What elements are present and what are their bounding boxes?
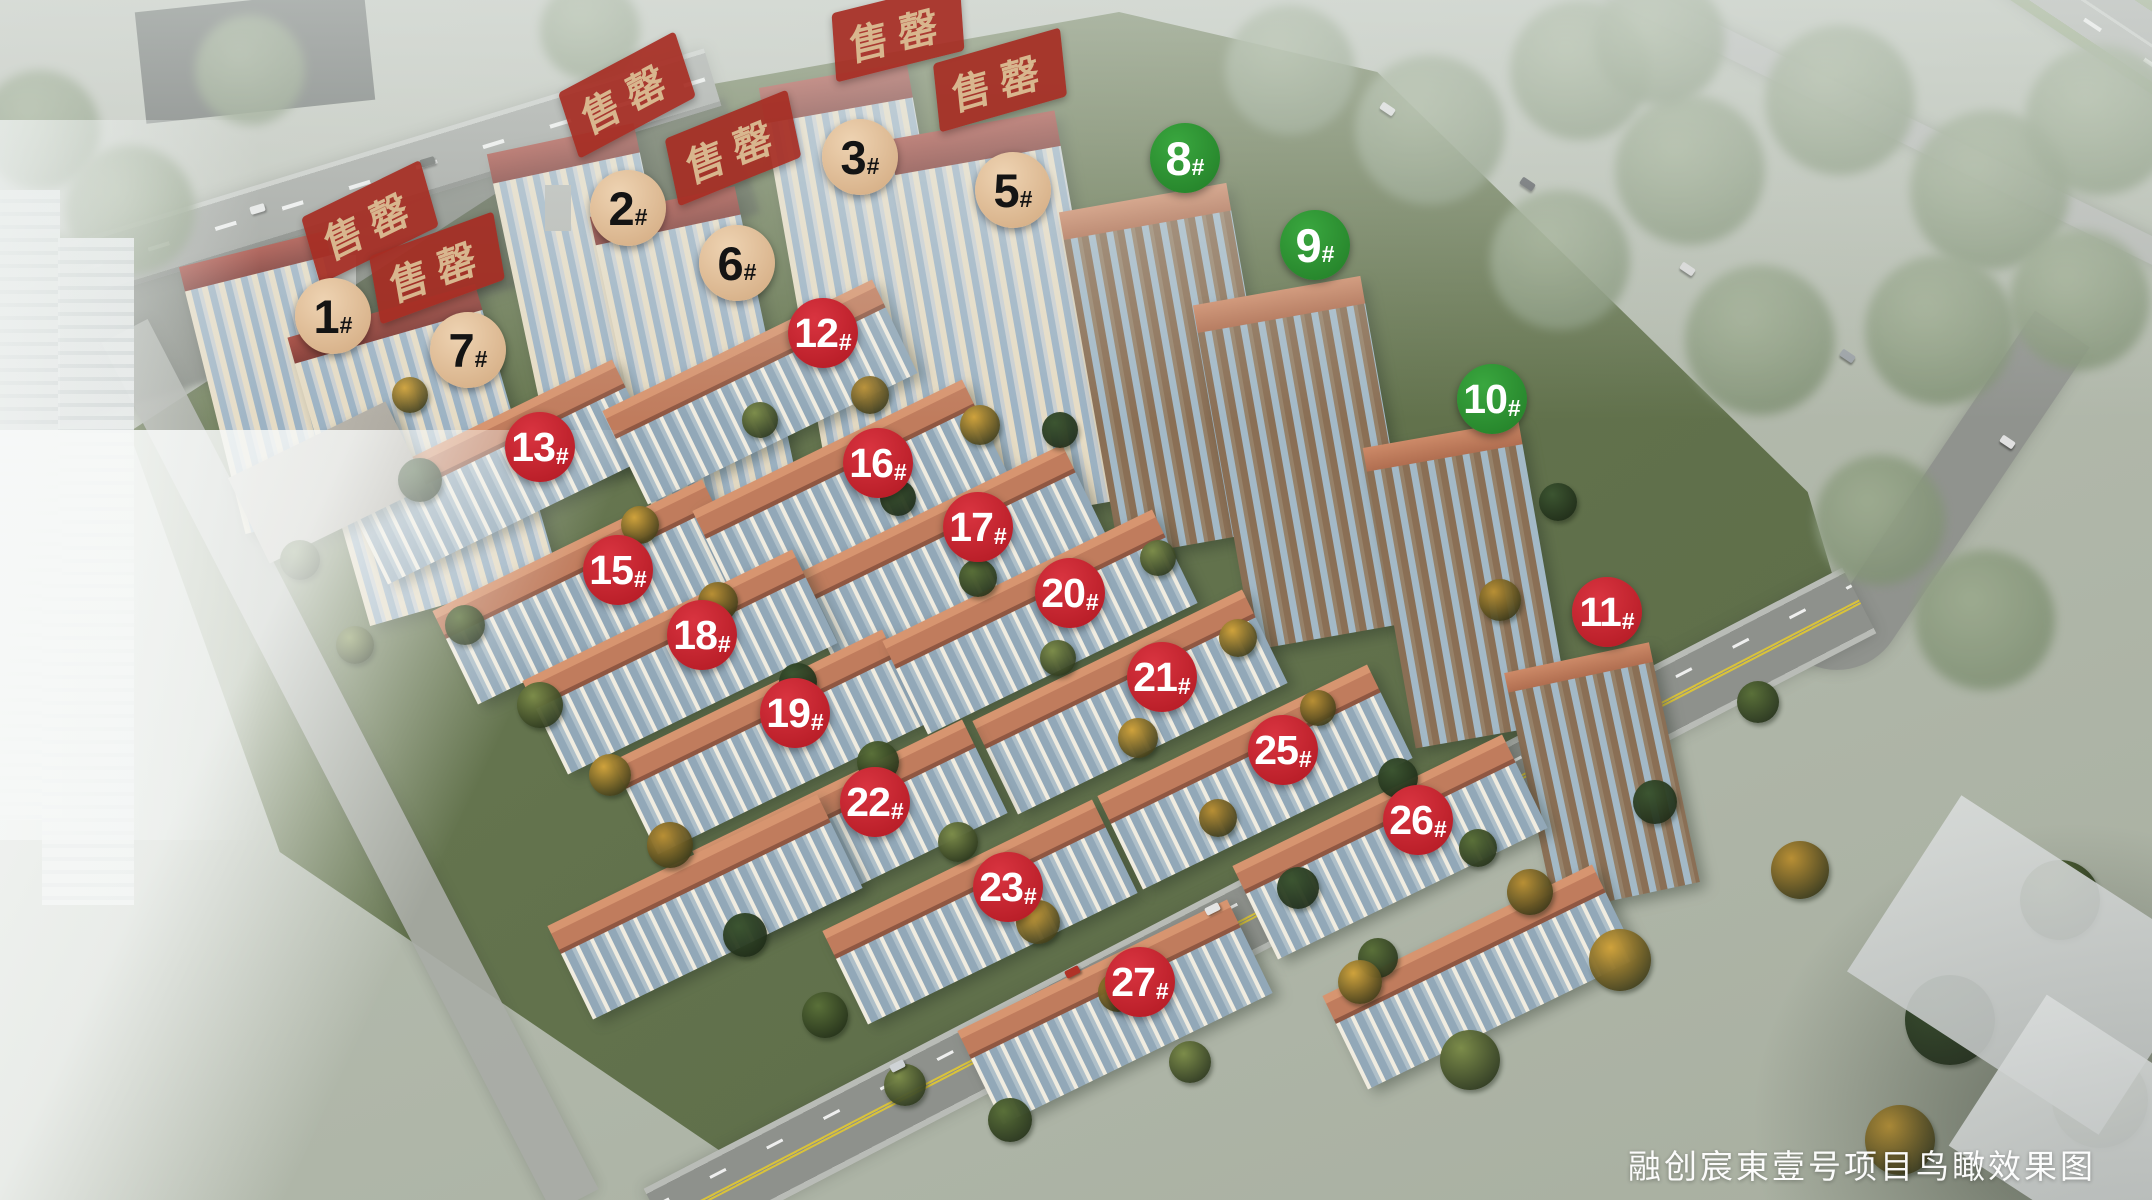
- marker-hash-suffix: #: [891, 800, 904, 823]
- building-marker-7#: 7#: [430, 312, 506, 388]
- marker-hash-suffix: #: [811, 711, 824, 734]
- marker-hash-suffix: #: [1020, 188, 1033, 211]
- marker-hash-suffix: #: [340, 314, 353, 337]
- marker-hash-suffix: #: [1178, 675, 1191, 698]
- marker-number: 15: [589, 550, 633, 591]
- marker-hash-suffix: #: [867, 155, 880, 178]
- marker-number: 8: [1166, 135, 1191, 182]
- marker-hash-suffix: #: [556, 445, 569, 468]
- marker-number: 10: [1463, 379, 1507, 420]
- building-marker-2#: 2#: [590, 170, 666, 246]
- caption-title: 融创宸東壹号项目鸟瞰效果图: [1628, 1140, 2096, 1188]
- building-marker-17#: 17#: [943, 492, 1013, 562]
- building-marker-9#: 9#: [1280, 210, 1350, 280]
- aerial-rendering: 售罄售罄售罄售罄售罄售罄 1#2#3#5#6#7#8#9#10#11#12#13…: [0, 0, 2152, 1200]
- building-marker-13#: 13#: [505, 412, 575, 482]
- marker-number: 11: [1579, 592, 1620, 633]
- marker-hash-suffix: #: [839, 331, 852, 354]
- building-marker-18#: 18#: [667, 600, 737, 670]
- building-marker-3#: 3#: [822, 119, 898, 195]
- marker-hash-suffix: #: [894, 461, 907, 484]
- building-marker-6#: 6#: [699, 225, 775, 301]
- marker-number: 2: [609, 185, 634, 232]
- marker-hash-suffix: #: [634, 568, 647, 591]
- marker-number: 20: [1041, 573, 1085, 614]
- marker-hash-suffix: #: [718, 633, 731, 656]
- building-marker-25#: 25#: [1248, 715, 1318, 785]
- marker-hash-suffix: #: [1622, 610, 1635, 633]
- building-marker-19#: 19#: [760, 678, 830, 748]
- building-markers-layer: 1#2#3#5#6#7#8#9#10#11#12#13#15#16#17#18#…: [0, 0, 2152, 1200]
- marker-number: 3: [841, 134, 866, 181]
- marker-hash-suffix: #: [635, 206, 648, 229]
- building-marker-8#: 8#: [1150, 123, 1220, 193]
- marker-hash-suffix: #: [994, 525, 1007, 548]
- marker-number: 7: [449, 327, 474, 374]
- building-marker-23#: 23#: [973, 852, 1043, 922]
- building-marker-22#: 22#: [840, 767, 910, 837]
- marker-hash-suffix: #: [1192, 156, 1205, 179]
- marker-number: 12: [794, 313, 838, 354]
- marker-number: 25: [1254, 730, 1298, 771]
- building-marker-11#: 11#: [1572, 577, 1642, 647]
- marker-number: 5: [994, 167, 1019, 214]
- building-marker-21#: 21#: [1127, 642, 1197, 712]
- marker-hash-suffix: #: [744, 261, 757, 284]
- marker-hash-suffix: #: [1434, 818, 1447, 841]
- building-marker-15#: 15#: [583, 535, 653, 605]
- marker-hash-suffix: #: [475, 348, 488, 371]
- building-marker-5#: 5#: [975, 152, 1051, 228]
- marker-number: 6: [718, 240, 743, 287]
- building-marker-16#: 16#: [843, 428, 913, 498]
- building-marker-27#: 27#: [1105, 947, 1175, 1017]
- marker-hash-suffix: #: [1024, 885, 1037, 908]
- marker-number: 1: [314, 293, 339, 340]
- marker-hash-suffix: #: [1156, 980, 1169, 1003]
- marker-number: 9: [1296, 222, 1321, 269]
- marker-number: 16: [849, 443, 893, 484]
- marker-number: 21: [1133, 657, 1177, 698]
- marker-hash-suffix: #: [1322, 243, 1335, 266]
- building-marker-12#: 12#: [788, 298, 858, 368]
- building-marker-20#: 20#: [1035, 558, 1105, 628]
- building-marker-1#: 1#: [295, 278, 371, 354]
- building-marker-10#: 10#: [1457, 364, 1527, 434]
- marker-number: 23: [979, 867, 1023, 908]
- marker-number: 22: [846, 782, 890, 823]
- marker-number: 18: [673, 615, 717, 656]
- marker-number: 26: [1389, 800, 1433, 841]
- marker-number: 19: [766, 693, 810, 734]
- marker-number: 13: [511, 427, 555, 468]
- marker-number: 27: [1111, 962, 1155, 1003]
- marker-number: 17: [949, 507, 993, 548]
- marker-hash-suffix: #: [1086, 591, 1099, 614]
- marker-hash-suffix: #: [1299, 748, 1312, 771]
- building-marker-26#: 26#: [1383, 785, 1453, 855]
- marker-hash-suffix: #: [1508, 397, 1521, 420]
